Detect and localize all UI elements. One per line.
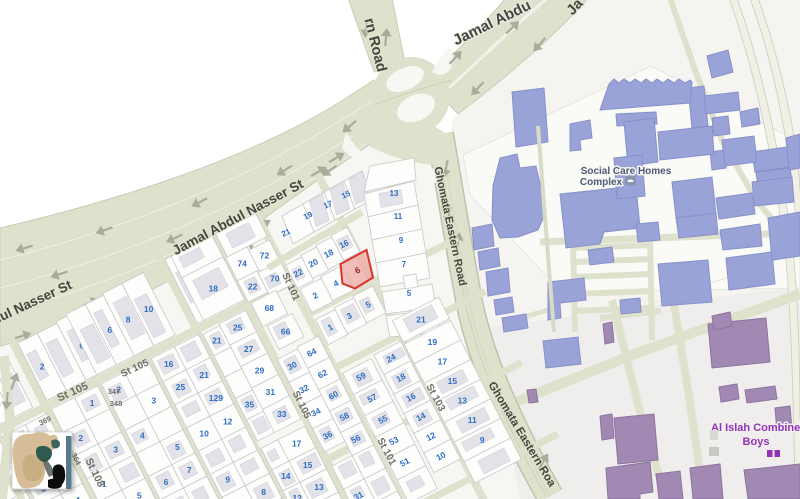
svg-text:10: 10: [199, 428, 209, 438]
svg-text:4: 4: [140, 431, 145, 441]
svg-text:15: 15: [448, 376, 458, 386]
svg-text:9: 9: [399, 236, 404, 245]
svg-text:33: 33: [277, 409, 287, 419]
svg-text:5: 5: [175, 442, 180, 452]
svg-text:21: 21: [416, 315, 426, 325]
svg-text:12: 12: [292, 493, 302, 499]
svg-text:7: 7: [187, 465, 192, 475]
svg-text:21: 21: [199, 370, 209, 380]
svg-text:14: 14: [281, 471, 291, 481]
svg-text:31: 31: [266, 387, 276, 397]
svg-text:1: 1: [90, 398, 95, 408]
svg-text:3: 3: [113, 444, 118, 454]
svg-text:3: 3: [151, 396, 156, 406]
svg-text:9: 9: [225, 475, 230, 485]
svg-text:Social Care Homes: Social Care Homes: [581, 166, 672, 177]
svg-text:68: 68: [265, 303, 275, 313]
svg-text:18: 18: [209, 283, 219, 293]
svg-text:6: 6: [164, 477, 169, 487]
svg-text:27: 27: [244, 344, 254, 354]
svg-text:8: 8: [261, 487, 266, 497]
svg-text:5: 5: [137, 491, 142, 499]
svg-text:17: 17: [292, 438, 302, 448]
svg-text:348: 348: [110, 399, 123, 408]
svg-text:Complex: Complex: [580, 177, 623, 188]
svg-text:129: 129: [209, 393, 223, 403]
svg-text:13: 13: [314, 482, 324, 492]
svg-text:35: 35: [245, 400, 255, 410]
svg-text:2: 2: [40, 362, 45, 372]
svg-text:21: 21: [212, 336, 222, 346]
svg-text:Boys: Boys: [743, 436, 770, 448]
svg-text:7: 7: [402, 260, 407, 269]
svg-text:29: 29: [255, 365, 265, 375]
svg-text:13: 13: [458, 396, 468, 406]
svg-text:11: 11: [394, 212, 403, 221]
svg-text:8: 8: [126, 315, 131, 325]
svg-text:25: 25: [233, 323, 243, 333]
svg-text:2: 2: [78, 433, 83, 443]
svg-text:5: 5: [407, 289, 412, 298]
svg-text:16: 16: [164, 359, 174, 369]
svg-text:17: 17: [438, 356, 448, 366]
svg-text:72: 72: [260, 251, 270, 261]
svg-text:10: 10: [144, 304, 154, 314]
svg-text:74: 74: [237, 259, 247, 269]
svg-text:347: 347: [108, 387, 121, 396]
svg-text:4: 4: [75, 495, 80, 499]
svg-text:70: 70: [270, 273, 280, 283]
svg-text:66: 66: [281, 326, 291, 336]
svg-text:25: 25: [176, 382, 186, 392]
svg-text:15: 15: [303, 460, 313, 470]
svg-text:9: 9: [480, 435, 485, 445]
svg-text:Al Islah Combined: Al Islah Combined: [711, 422, 800, 434]
svg-text:12: 12: [223, 416, 233, 426]
svg-text:6: 6: [107, 325, 112, 335]
svg-text:13: 13: [390, 189, 399, 198]
svg-text:22: 22: [248, 281, 258, 291]
svg-text:19: 19: [428, 337, 438, 347]
svg-text:11: 11: [468, 415, 477, 425]
